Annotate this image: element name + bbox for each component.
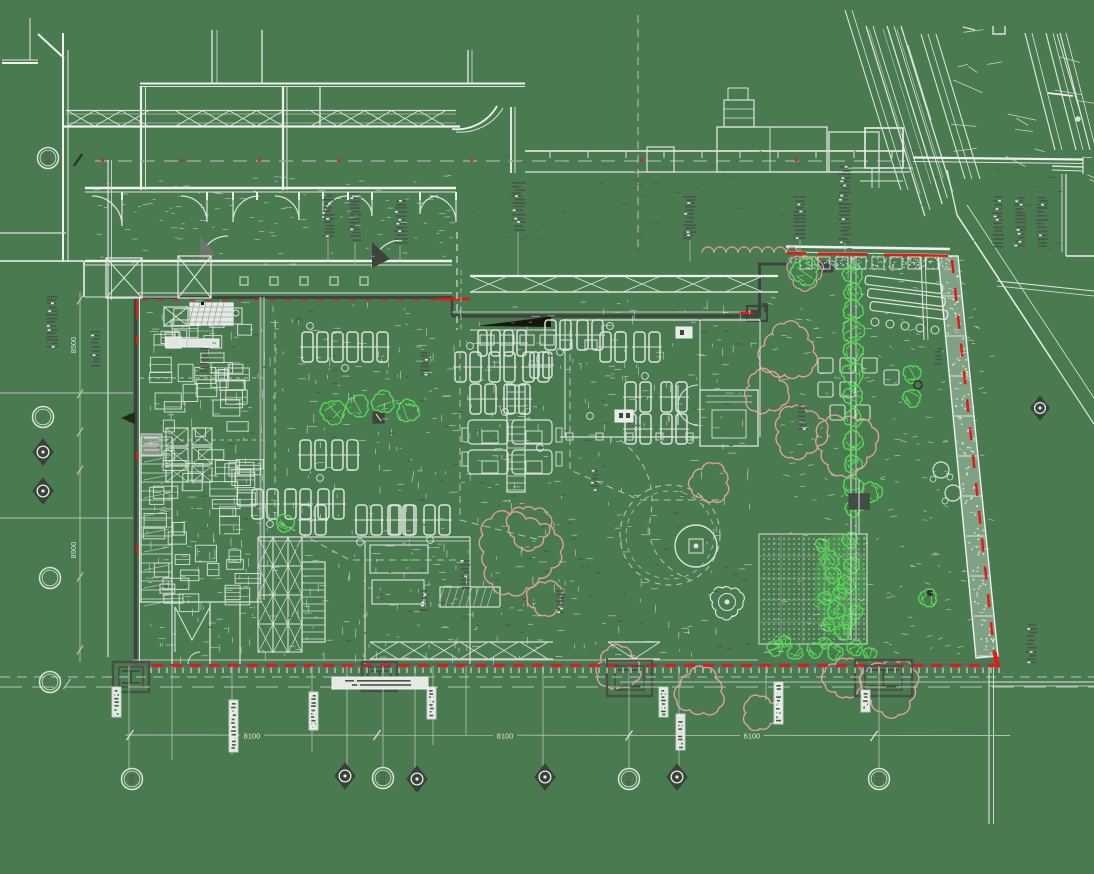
- svg-text:8500: 8500: [69, 337, 78, 354]
- svg-text:B12: B12: [876, 773, 883, 786]
- svg-text:8900: 8900: [69, 542, 78, 559]
- svg-text:B10: B10: [380, 772, 387, 785]
- svg-text:B8: B8: [129, 775, 136, 784]
- svg-text:B11: B11: [626, 773, 633, 785]
- svg-text:8100: 8100: [244, 732, 261, 741]
- svg-text:A25: A25: [45, 152, 52, 165]
- svg-text:6100: 6100: [744, 732, 761, 741]
- svg-text:8100: 8100: [497, 732, 514, 741]
